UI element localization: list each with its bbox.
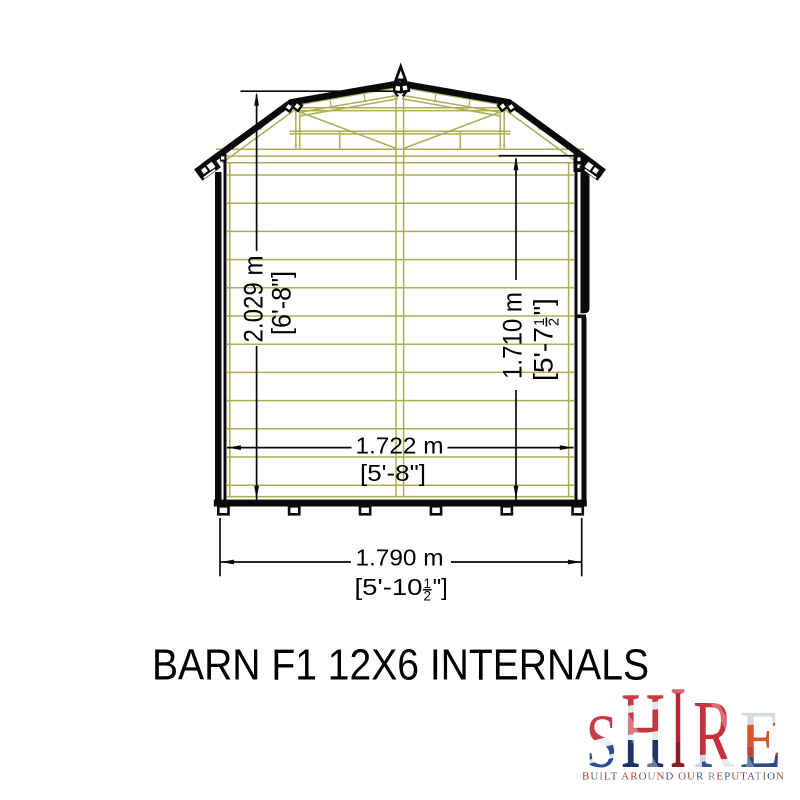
svg-text:[5'-7: [5'-7 (529, 327, 559, 381)
svg-text:1.722 m: 1.722 m (356, 432, 444, 458)
svg-text:2.029 m: 2.029 m (238, 256, 268, 343)
svg-text:BUILT AROUND OUR REPUTATION: BUILT AROUND OUR REPUTATION (582, 771, 784, 783)
svg-text:2: 2 (423, 589, 431, 604)
svg-text:2: 2 (546, 318, 562, 326)
svg-text:"]: "] (529, 298, 559, 315)
svg-text:BARN F1 12X6 INTERNALS: BARN F1 12X6 INTERNALS (152, 641, 649, 690)
svg-text:[6'-8"]: [6'-8"] (266, 271, 296, 335)
svg-text:"]: "] (433, 574, 448, 600)
svg-text:[5'-10: [5'-10 (355, 574, 423, 600)
svg-text:1.710 m: 1.710 m (497, 292, 527, 379)
svg-text:1.790 m: 1.790 m (356, 544, 444, 570)
svg-text:[5'-8"]: [5'-8"] (360, 460, 426, 486)
